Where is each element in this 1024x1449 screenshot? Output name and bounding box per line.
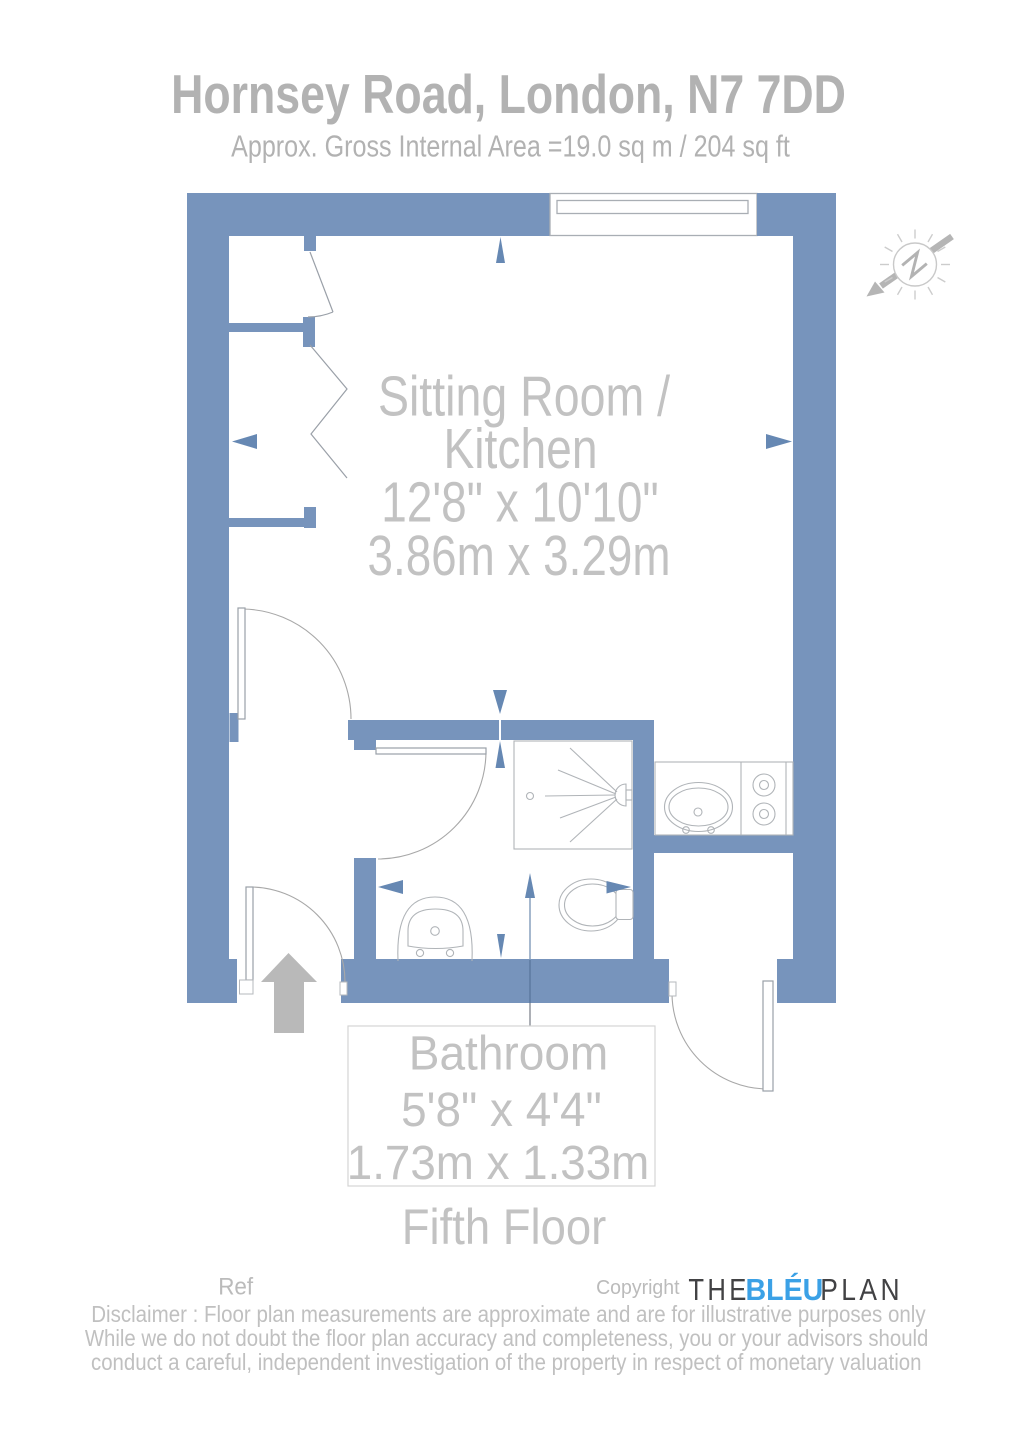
svg-text:conduct a careful, independent: conduct a careful, independent investiga… — [91, 1349, 921, 1375]
svg-text:Copyright: Copyright — [596, 1277, 680, 1300]
svg-text:1.73m x 1.33m: 1.73m x 1.33m — [347, 1135, 649, 1190]
svg-text:Fifth Floor: Fifth Floor — [402, 1200, 607, 1256]
svg-text:While we do not doubt the floo: While we do not doubt the floor plan acc… — [85, 1325, 929, 1351]
svg-text:Bathroom: Bathroom — [409, 1026, 608, 1080]
svg-text:Disclaimer : Floor plan measur: Disclaimer : Floor plan measurements are… — [91, 1301, 925, 1327]
svg-text:Approx. Gross Internal Area =1: Approx. Gross Internal Area =19.0 sq m /… — [231, 129, 790, 163]
svg-text:3.86m x 3.29m: 3.86m x 3.29m — [367, 523, 670, 587]
svg-text:Hornsey Road, London, N7 7DD: Hornsey Road, London, N7 7DD — [171, 64, 846, 125]
svg-text:5'8" x 4'4": 5'8" x 4'4" — [401, 1083, 602, 1137]
svg-text:Ref: Ref — [218, 1273, 253, 1300]
